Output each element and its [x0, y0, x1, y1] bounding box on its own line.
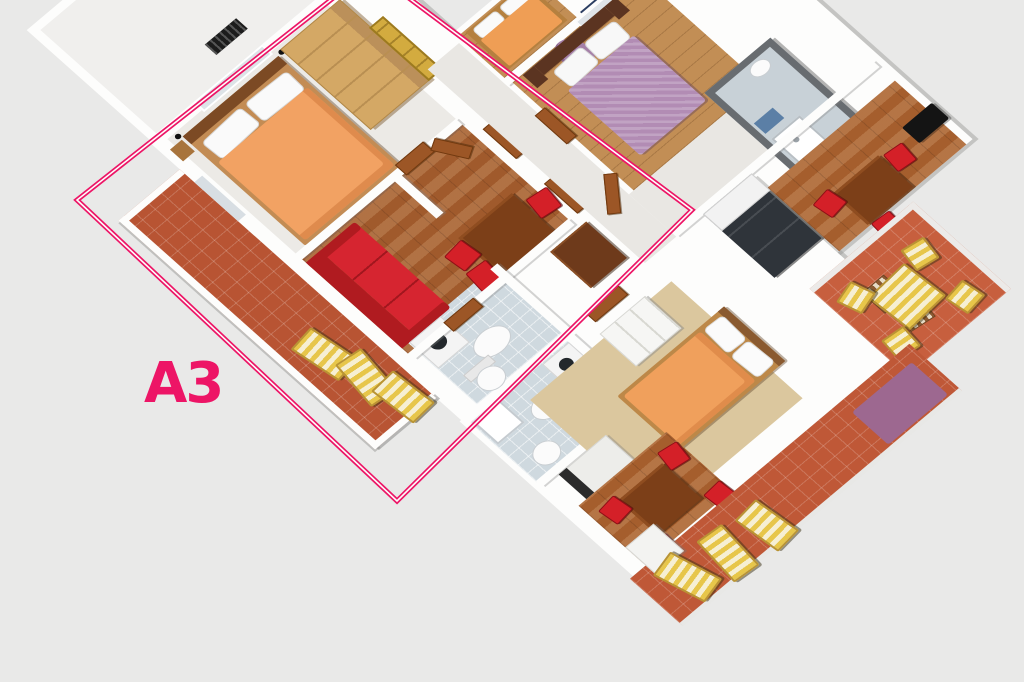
floor-plan-render: A3 [0, 0, 1024, 682]
apartment-label: A3 [144, 356, 222, 412]
